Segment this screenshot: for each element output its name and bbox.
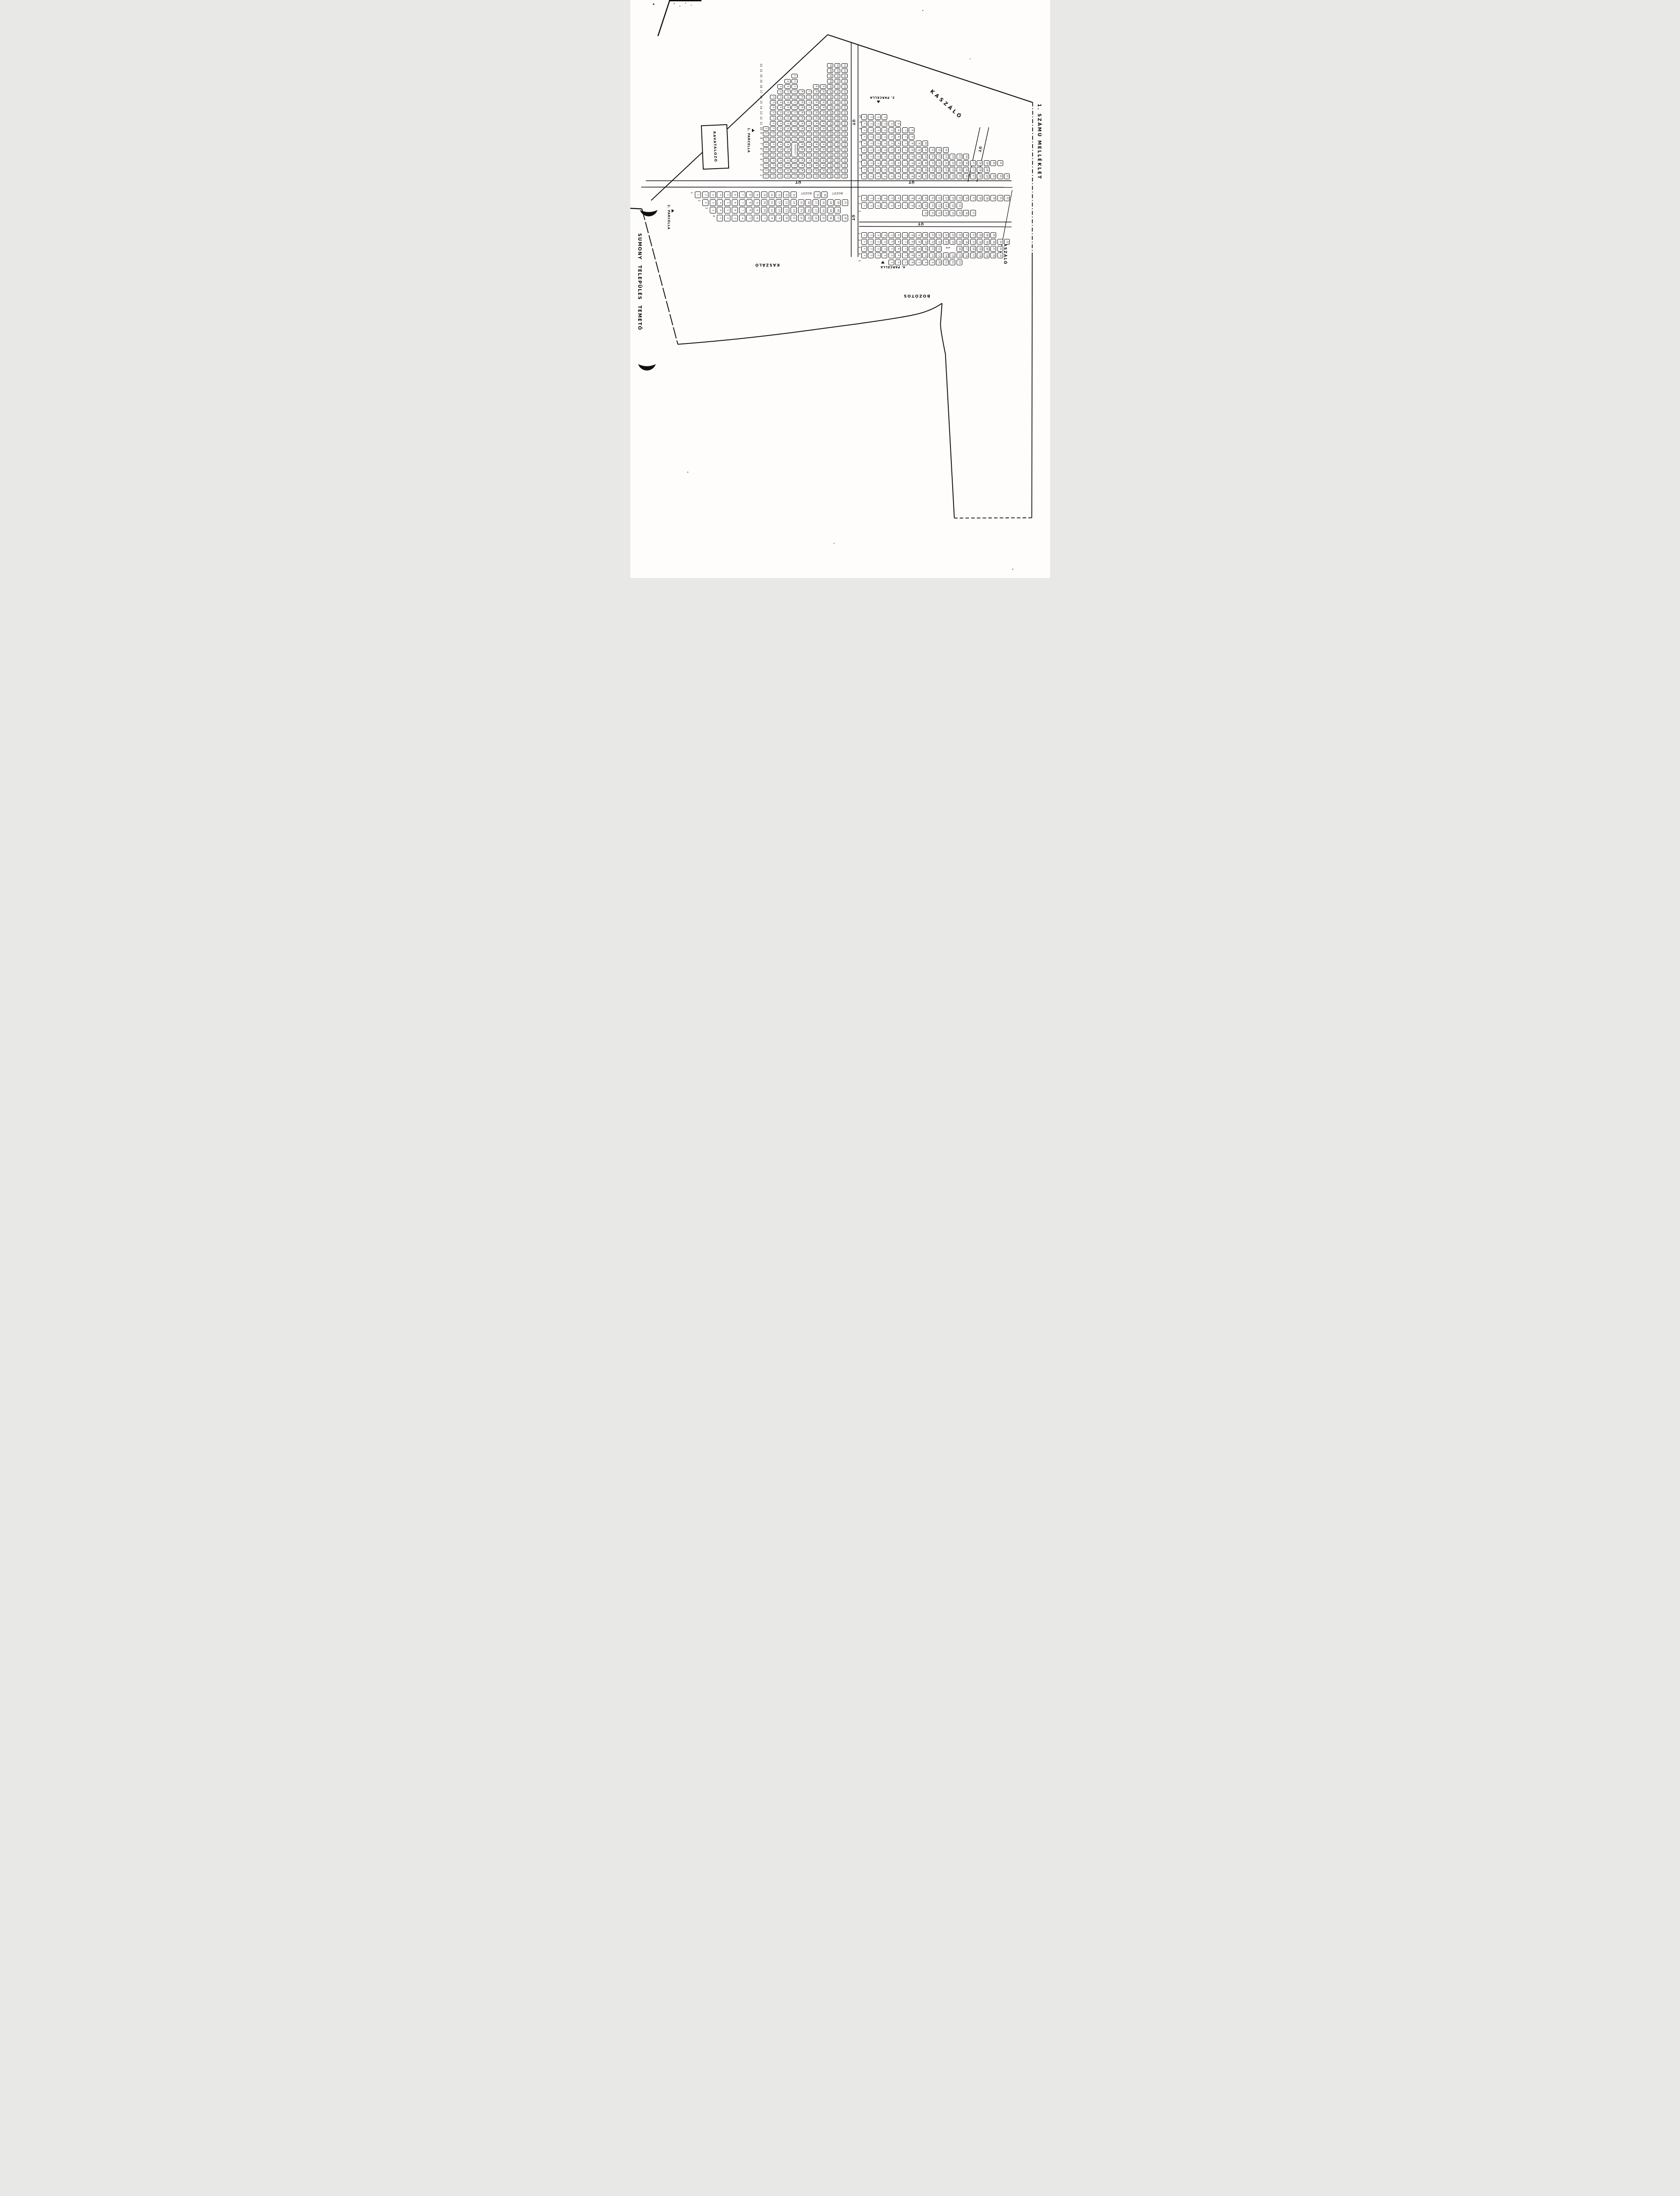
grave-plot-cell: 2 [770, 158, 776, 163]
grave-plot-cell: 8 [909, 127, 914, 133]
grave-plot-cell: 5 [791, 74, 798, 78]
grave-plot-cell: 9 [820, 169, 826, 173]
grave-plot-cell: 10 [936, 260, 942, 265]
grave-plot-cell: 3 [875, 141, 881, 146]
road-label-ut-horizontal-west: ÚT [792, 180, 804, 184]
mortuary-label: RAVATALOZÓ [712, 131, 717, 163]
grave-plot-cell: 8 [909, 253, 914, 258]
row-number-label: 17 [759, 90, 762, 93]
grave-plot-cell: 13 [943, 195, 949, 202]
grave-plot-cell: 2 [770, 100, 776, 105]
grave-plot-cell: 11 [929, 202, 935, 209]
grave-plot-cell: 6 [895, 127, 901, 133]
grave-plot-cell: 3 [875, 121, 881, 126]
grave-plot-cell: 11 [835, 148, 841, 152]
grave-plot-cell: 4 [882, 154, 887, 159]
grave-plot-cell: 5 [791, 111, 798, 115]
grave-plot-cell: 4 [784, 126, 791, 131]
grave-plot-cell: 20 [990, 160, 996, 166]
parcel-4-marker-triangle [881, 261, 885, 264]
row-number-label: 3 [857, 210, 860, 212]
grave-plot-cell: 9 [916, 253, 921, 258]
grave-plot-cell: 17 [970, 210, 976, 217]
grave-plot-cell: 8 [813, 163, 819, 168]
grave-plot-cell: 11 [929, 253, 935, 258]
grave-plot-cell: 7 [902, 160, 908, 166]
grave-plot-cell: 12 [842, 153, 848, 157]
grave-plot-cell: 20 [984, 246, 990, 252]
grave-plot-cell: 10 [827, 111, 833, 115]
grave-plot-cell: 5 [889, 154, 894, 159]
grave-plot-cell: 5 [791, 79, 798, 83]
row-number-label: 6 [858, 141, 861, 143]
grave-plot-cell: 7 [902, 195, 908, 202]
grave-plot-cell: 1 [763, 169, 769, 173]
grave-plot-cell: 11 [835, 116, 841, 120]
grave-plot-cell: 8 [813, 116, 819, 120]
grave-plot-cell: 21 [842, 199, 848, 206]
grave-plot-cell: 2 [868, 134, 874, 140]
grave-plot-cell: 10 [922, 239, 928, 245]
grave-plot-cell: 15 [957, 195, 962, 202]
grave-plot-cell: 11 [769, 191, 775, 198]
grave-plot-cell: 7 [806, 90, 812, 94]
grave-plot-cell: 15 [957, 167, 962, 173]
grave-plot-cell: 11 [929, 147, 935, 153]
boundary-right-edge-dashdot [1032, 102, 1033, 253]
grave-plot-cell: 11 [769, 207, 775, 213]
grave-plot-cell: 4 [882, 160, 887, 166]
parcel-3-marker-triangle [877, 101, 880, 103]
grave-plot-cell: 4 [882, 121, 887, 126]
grave-plot-cell: 9 [916, 195, 921, 202]
row-number-label: 5 [858, 148, 861, 149]
grave-plot-cell: 9 [916, 160, 921, 166]
grave-plot-cell: 9 [820, 158, 826, 163]
grave-plot-cell: 6 [798, 163, 805, 168]
grave-plot-cell: 6 [895, 202, 901, 209]
grave-plot-cell: 14 [950, 202, 955, 209]
grave-plot-cell: 8 [813, 90, 819, 94]
grave-plot-cell: 1 [763, 163, 769, 168]
grave-plot-cell: 14 [950, 154, 955, 159]
grave-plot-cell: 9 [820, 174, 826, 178]
grave-plot-cell: 10 [922, 202, 928, 209]
grave-plot-cell: 5 [902, 260, 908, 265]
grave-plot-cell: 1 [861, 239, 867, 245]
grave-plot-cell: 2 [770, 95, 776, 99]
grave-plot-cell: 17 [813, 199, 819, 206]
grave-plot-cell: 3 [777, 105, 784, 110]
grave-plot-cell: 13 [943, 160, 949, 166]
grave-plot-cell: 6 [798, 158, 805, 163]
row-number-label: 1 [858, 174, 861, 176]
grave-plot-cell: 20 [990, 173, 996, 179]
grave-plot-cell: 4 [784, 148, 791, 152]
grave-plot-cell: 8 [909, 239, 914, 245]
grave-plot-cell: 2 [868, 253, 874, 258]
annotation-note: BOZÓT [801, 191, 812, 195]
grave-plot-cell: 6 [798, 169, 805, 173]
grave-plot-cell: 9 [916, 147, 921, 153]
row-number-label: 3 [759, 164, 762, 166]
grave-plot-cell: 4 [784, 132, 791, 136]
grave-plot-cell: 12 [936, 202, 942, 209]
grave-plot-cell: 15 [957, 253, 962, 258]
grave-plot-cell: 2 [770, 126, 776, 131]
grave-plot-cell: 8 [746, 199, 752, 206]
grave-plot-cell: 4 [784, 100, 791, 105]
grave-plot-cell: 19 [977, 246, 983, 252]
parcel-3-label: 3. PARCELLA [868, 95, 896, 99]
grave-plot-cell: 8 [746, 191, 752, 198]
grave-plot-cell: 9 [916, 173, 921, 179]
grave-plot-cell: 19 [984, 195, 990, 202]
grave-plot-cell: 6 [895, 160, 901, 166]
meadow-label-northeast: KASZÁLÓ [932, 86, 974, 94]
grave-plot-cell: 5 [889, 195, 894, 202]
grave-plot-cell: 3 [875, 232, 881, 238]
grave-plot-cell: 4 [882, 167, 887, 173]
grave-plot-cell: 14 [950, 239, 955, 245]
grave-plot-cell: 10 [827, 153, 833, 157]
grave-plot-cell: 12 [936, 173, 942, 179]
grave-plot-cell: 6 [895, 253, 901, 258]
grave-plot-cell: 10 [761, 191, 767, 198]
grave-plot-cell: 11 [929, 210, 935, 217]
grave-plot-cell: 15 [957, 210, 962, 217]
grave-plot-cell: 10 [827, 90, 833, 94]
grave-plot-cell: 2 [868, 160, 874, 166]
grave-plot-cell: 3 [875, 134, 881, 140]
grave-plot-cell: 2 [868, 202, 874, 209]
grave-plot-cell: 6 [732, 199, 738, 206]
grave-plot-cell: 7 [902, 232, 908, 238]
grave-plot-cell: 10 [761, 207, 767, 213]
grave-plot-cell: 15 [798, 199, 804, 206]
row-number-label: 5 [857, 260, 860, 262]
row-number-label: 2 [697, 200, 700, 202]
grave-plot-cell: 11 [929, 173, 935, 179]
grave-plot-cell: 3 [875, 195, 881, 202]
grave-plot-cell: 10 [827, 132, 833, 136]
grave-plot-cell: 11 [929, 239, 935, 245]
grave-plot-cell: 10 [922, 147, 928, 153]
grave-plot-cell: 6 [895, 134, 901, 140]
grave-plot-cell: 3 [777, 153, 784, 157]
grave-plot-cell: 9 [776, 215, 782, 221]
grave-plot-cell: 6 [798, 153, 805, 157]
row-number-label: 8 [759, 137, 762, 139]
grave-plot-cell: 10 [922, 154, 928, 159]
grave-plot-cell: 2 [868, 167, 874, 173]
row-number-label: 2 [858, 167, 861, 169]
grave-plot-cell: 21 [997, 173, 1003, 179]
annotation-note: BOZÓT [832, 191, 843, 195]
grave-plot-cell: 4 [784, 84, 791, 89]
grave-plot-cell: 7 [739, 199, 745, 206]
grave-plot-cell: 7 [902, 134, 908, 140]
grave-plot-cell: 5 [724, 191, 730, 198]
grave-plot-cell: 2 [868, 127, 874, 133]
grave-plot-cell: 4 [784, 174, 791, 178]
grave-plot-cell: 8 [909, 246, 914, 252]
grave-plot-cell: 5 [889, 121, 894, 126]
grave-plot-cell: 7 [761, 215, 767, 221]
grave-plot-cell: 8 [813, 137, 819, 141]
grave-plot-cell: 12 [776, 191, 782, 198]
grave-plot-cell: 5 [791, 126, 798, 131]
grave-plot-cell: 20 [990, 232, 996, 238]
grave-plot-cell: 6 [895, 147, 901, 153]
grave-plot-cell: 19 [827, 207, 834, 213]
grave-plot-cell: 5 [791, 95, 798, 99]
grave-plot-cell: 12 [936, 232, 942, 238]
grave-plot-cell: 3 [710, 191, 716, 198]
row-number-label: 13 [759, 111, 762, 114]
row-number-label: 14 [759, 106, 762, 109]
crescent-mark [638, 364, 656, 371]
grave-plot-cell: 7 [806, 100, 812, 105]
grave-plot-cell: 11 [835, 169, 841, 173]
grave-plot-cell: 3 [777, 121, 784, 126]
row-number-label: 7 [858, 134, 861, 136]
grave-plot-cell: 3 [777, 142, 784, 147]
grave-plot-cell: 11 [835, 69, 841, 73]
grave-plot-cell: 8 [813, 169, 819, 173]
grave-plot-cell: 18 [842, 215, 848, 221]
grave-plot-cell: 6 [909, 260, 914, 265]
grave-plot-cell: 6 [798, 142, 805, 147]
grave-plot-cell: 2 [770, 153, 776, 157]
parcel-4-label: 4. PARCELLA [879, 265, 907, 268]
grave-plot-cell: 7 [902, 202, 908, 209]
grave-plot-cell: 12 [842, 111, 848, 115]
grave-plot-cell: 12 [798, 215, 804, 221]
grave-plot-cell: 10 [922, 141, 928, 146]
grave-plot-cell: 5 [889, 160, 894, 166]
scan-speck [970, 58, 971, 59]
grave-plot-cell: 20 [835, 207, 841, 213]
grave-plot-cell: 1 [763, 158, 769, 163]
grave-plot-cell: 7 [902, 147, 908, 153]
grave-plot-cell: 8 [813, 132, 819, 136]
grave-plot-cell: 15 [957, 173, 962, 179]
scan-artifact-top-band [669, 0, 701, 1]
grave-plot-cell: 15 [798, 207, 804, 213]
grave-plot-cell: 10 [783, 215, 789, 221]
grave-plot-cell: 2 [868, 114, 874, 120]
row-number-label: 7 [759, 143, 762, 144]
grave-plot-cell: 8 [909, 167, 914, 173]
grave-plot-cell: 5 [889, 167, 894, 173]
grave-plot-cell: 5 [889, 239, 894, 245]
grave-plot-cell: 10 [922, 167, 928, 173]
grave-plot-cell: 17 [970, 195, 976, 202]
grave-plot-cell: 12 [950, 260, 955, 265]
grave-plot-cell: 5 [791, 116, 798, 120]
grave-plot-cell: 12 [842, 132, 848, 136]
grave-plot-cell: 3 [875, 246, 881, 252]
grave-plot-cell: 6 [798, 95, 805, 99]
row-number-label: 4 [759, 159, 762, 160]
grave-plot-cell: 11 [835, 90, 841, 94]
grave-plot-cell: 3 [777, 132, 784, 136]
grave-plot-cell: 18 [977, 239, 983, 245]
grave-plot-cell: 6 [895, 232, 901, 238]
grave-plot-cell: 8 [813, 148, 819, 152]
grave-plot-cell: 9 [820, 148, 826, 152]
grave-plot-cell: 7 [806, 142, 812, 147]
row-number-label: 2 [857, 239, 860, 241]
grave-plot-cell: 11 [835, 142, 841, 147]
grave-plot-cell: 2 [724, 215, 730, 221]
grave-plot-cell: 12 [842, 174, 848, 178]
grave-plot-cell: 12 [842, 163, 848, 168]
grave-plot-cell: 13 [783, 199, 789, 206]
grave-plot-cell: 11 [929, 195, 935, 202]
grave-plot-cell: 1 [861, 167, 867, 173]
grave-plot-cell: 8 [909, 202, 914, 209]
grave-plot-cell: 3 [777, 95, 784, 99]
grave-plot-cell: 12 [842, 126, 848, 131]
grave-plot-cell: 9 [820, 95, 826, 99]
grave-plot-cell: 12 [842, 63, 848, 68]
grave-plot-cell: 6 [895, 141, 901, 146]
grave-plot-cell: 4 [717, 199, 723, 206]
grave-plot-cell: 11 [929, 167, 935, 173]
grave-plot-cell: 9 [754, 191, 760, 198]
grave-plot-cell: 10 [922, 160, 928, 166]
grave-plot-cell: 15 [957, 239, 962, 245]
grave-plot-cell: 1 [861, 141, 867, 146]
grave-plot-cell: 8 [769, 215, 775, 221]
row-number-label: 20 [759, 74, 762, 77]
grave-plot-cell: 3 [777, 137, 784, 141]
grave-plot-cell: 16 [963, 195, 969, 202]
grave-plot-cell: 4 [717, 207, 723, 213]
grave-plot-cell: 6 [798, 105, 805, 110]
grave-plot-cell: 5 [791, 137, 798, 141]
grave-plot-cell: 2 [770, 132, 776, 136]
grave-plot-cell: 7 [902, 239, 908, 245]
grave-plot-cell: 7 [806, 116, 812, 120]
grave-plot-cell: 12 [842, 105, 848, 110]
grave-plot-cell: 4 [784, 142, 791, 147]
grave-plot-cell: 5 [889, 147, 894, 153]
grave-plot-cell: 3 [777, 158, 784, 163]
grave-plot-cell: 19 [984, 239, 990, 245]
grave-plot-cell: 12 [936, 253, 942, 258]
grave-plot-cell: 3 [875, 154, 881, 159]
grave-plot-cell: 10 [827, 69, 833, 73]
grave-plot-cell: 5 [889, 127, 894, 133]
grave-plot-cell: 10 [922, 210, 928, 217]
scan-speck [687, 472, 688, 473]
grave-plot-cell: 16 [805, 207, 811, 213]
grave-plot-cell: 8 [909, 147, 914, 153]
grave-plot-cell: 16 [827, 215, 834, 221]
grave-plot-cell: 12 [776, 199, 782, 206]
grave-plot-cell: 1 [763, 126, 769, 131]
grave-plot-cell: 20 [990, 253, 996, 258]
grave-plot-cell: 5 [791, 100, 798, 105]
grave-plot-cell: 11 [835, 121, 841, 126]
grave-plot-cell: 9 [754, 207, 760, 213]
grave-plot-cell: 6 [798, 100, 805, 105]
grave-plot-cell: 10 [827, 174, 833, 178]
grave-plot-cell: 3 [777, 111, 784, 115]
grave-plot-cell: 1 [861, 246, 867, 252]
road-label-ut-horizontal-east: ÚT [906, 180, 917, 184]
grave-plot-cell: 7 [902, 127, 908, 133]
grave-plot-cell: 11 [929, 246, 935, 252]
grave-plot-cell: 10 [922, 195, 928, 202]
grave-plot-cell: 14 [950, 160, 955, 166]
bushes-label: BOZÓTOS [901, 293, 932, 297]
grave-plot-cell: 7 [806, 137, 812, 141]
grave-plot-cell: 4 [717, 191, 723, 198]
grave-plot-cell: 13 [943, 167, 949, 173]
grave-plot-cell: 12 [842, 74, 848, 78]
grave-plot-cell: 1 [861, 134, 867, 140]
grave-plot-cell: 12 [936, 246, 942, 252]
grave-plot-cell: 7 [806, 158, 812, 163]
grave-plot-cell: 12 [842, 100, 848, 105]
row-number-label: 1 [857, 195, 860, 197]
grave-plot-cell: 20 [990, 195, 996, 202]
grave-plot-cell: 16 [963, 253, 969, 258]
grave-plot-cell: 12 [842, 158, 848, 163]
grave-plot-cell: 12 [842, 116, 848, 120]
grave-plot-cell: 9 [820, 90, 826, 94]
grave-plot-cell: 8 [909, 154, 914, 159]
grave-plot-cell: 22 [1004, 195, 1010, 202]
grave-plot-cell: 3 [889, 260, 894, 265]
road-label-ut-parcel4-separator: ÚT [915, 221, 926, 225]
grave-plot-cell: 11 [835, 74, 841, 78]
row-number-label: 3 [858, 161, 861, 163]
grave-plot-cell: 9 [820, 142, 826, 147]
grave-plot-cell: 8 [909, 232, 914, 238]
grave-plot-cell: 3 [777, 84, 784, 89]
boundary-bottom-dashed [954, 518, 1031, 518]
grave-plot-cell: 6 [798, 137, 805, 141]
grave-plot-cell: 3 [732, 215, 738, 221]
grave-plot-cell: 12 [842, 142, 848, 147]
grave-plot-cell: 12 [842, 90, 848, 94]
grave-plot-cell: 5 [791, 84, 798, 89]
grave-plot-cell: 4 [784, 111, 791, 115]
grave-plot-cell: 18 [977, 173, 983, 179]
row-number-label: 16 [759, 95, 762, 98]
grave-plot-cell: 2 [868, 154, 874, 159]
mortuary-box: RAVATALOZÓ [701, 124, 729, 170]
grave-plot-cell: 16 [957, 246, 962, 252]
grave-plot-cell: 21 [997, 253, 1003, 258]
grave-plot-cell: 16 [963, 232, 969, 238]
grave-plot-cell: 6 [895, 173, 901, 179]
grave-plot-cell: 14 [950, 173, 955, 179]
grave-plot-cell: 1 [763, 132, 769, 136]
grave-plot-cell: 7 [739, 207, 745, 213]
grave-plot-cell: 1 [717, 215, 723, 221]
grave-plot-cell: 15 [957, 160, 962, 166]
parcel-1-label: 1. PARCELLA [747, 128, 750, 153]
grave-plot-cell: 9 [916, 167, 921, 173]
grave-plot-cell: 1 [763, 174, 769, 178]
grave-plot-cell: 1 [861, 127, 867, 133]
